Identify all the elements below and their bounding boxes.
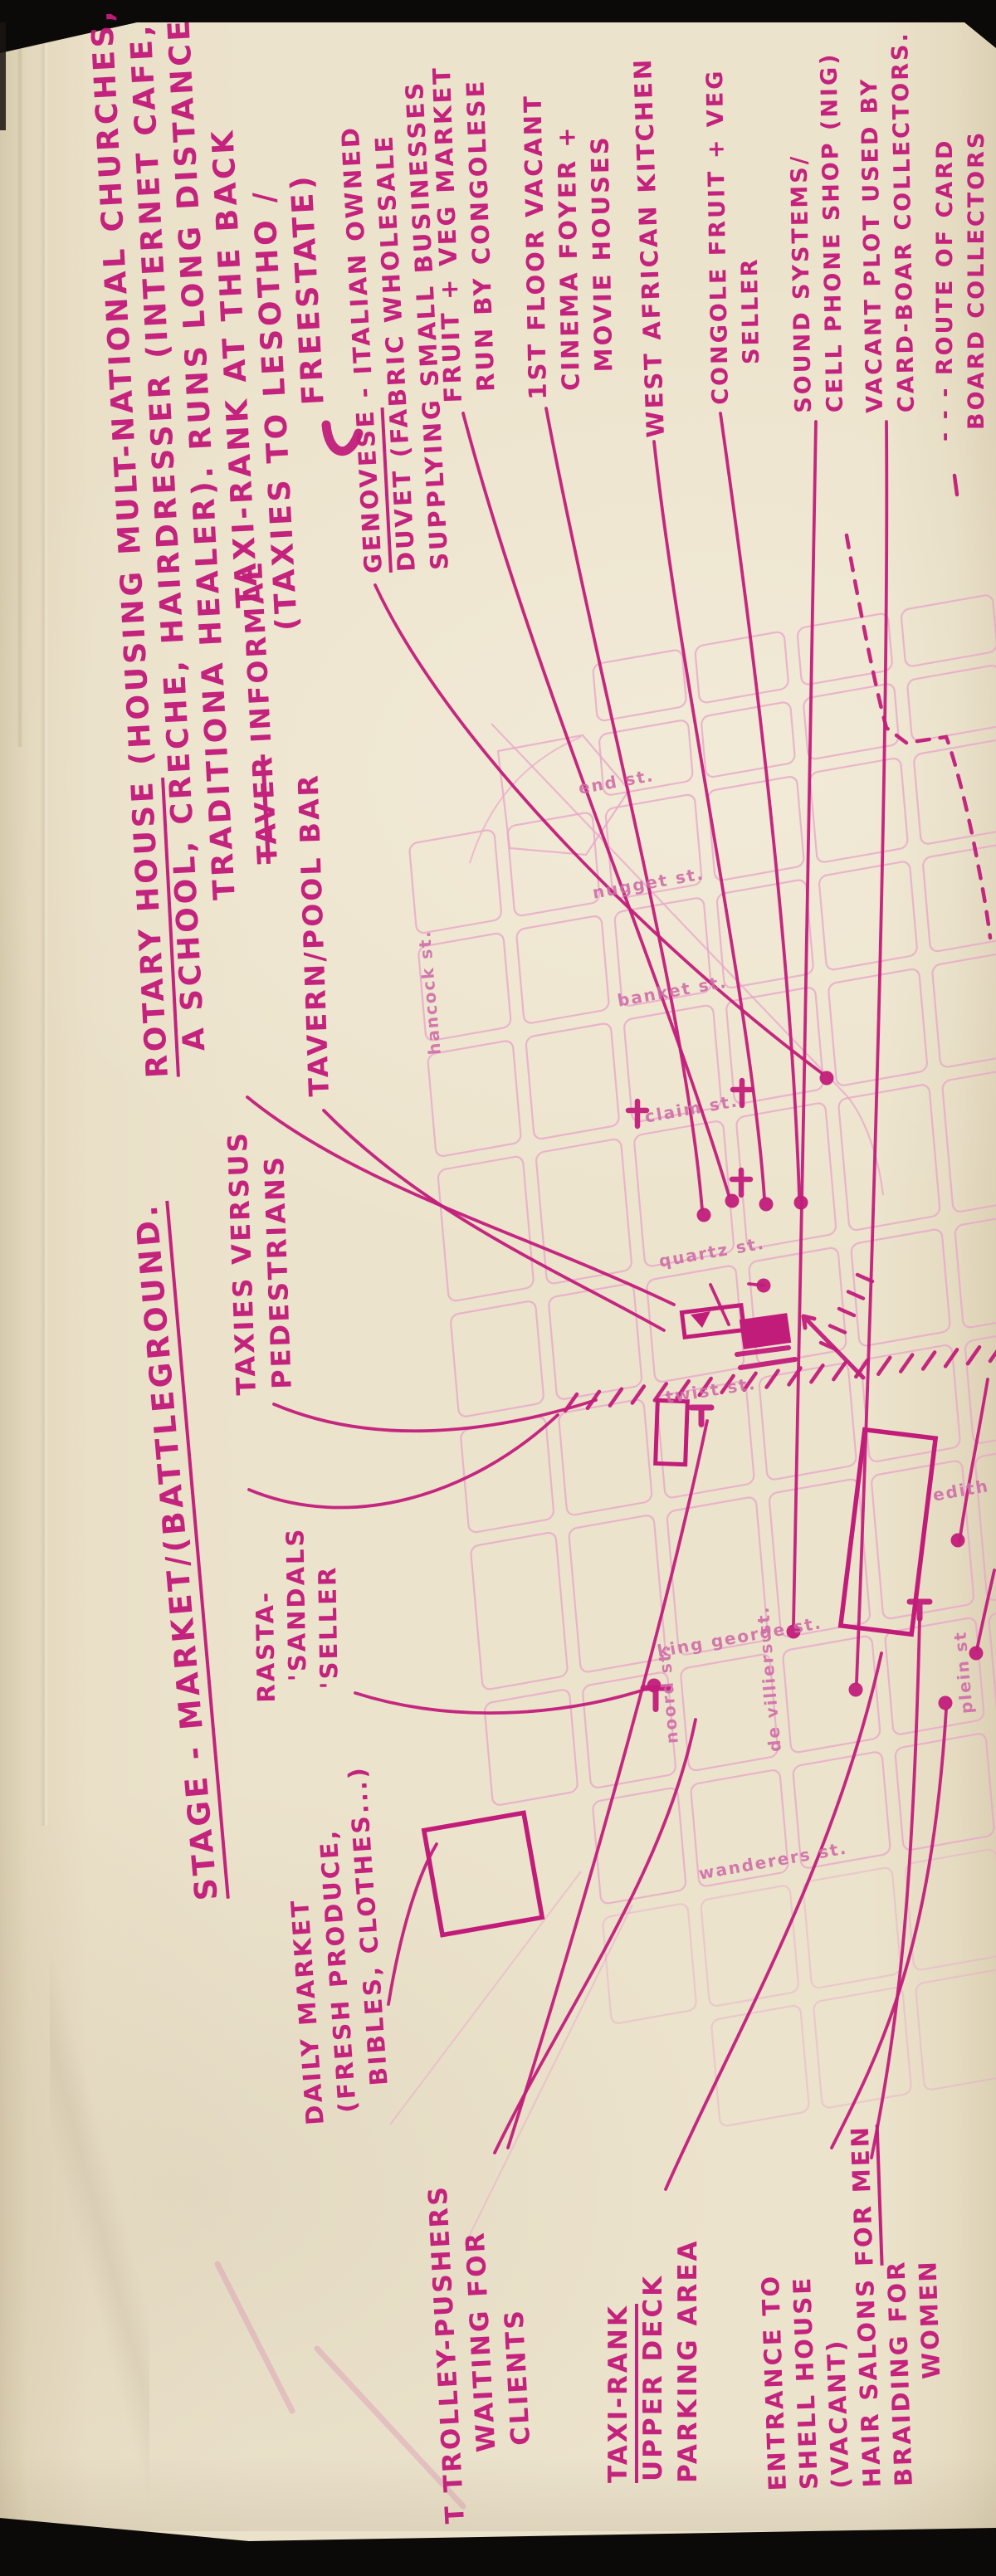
annotation-text: VACANT PLOT USED BY [857,76,888,413]
annotation-fruit-veg-market: FRUIT + VEG MARKETRUN BY CONGOLESE [425,64,503,403]
annotation-line: TAXI-RANK [601,2238,636,2483]
annotation-line: MOVIE HOUSES [583,92,621,398]
annotation-text: WOMEN [913,2259,945,2380]
annotation-line: CINEMA FOYER + [549,93,588,399]
annotation-text: CONGOLE FRUIT + VEG [702,68,734,405]
annotation-text: SELLER [737,256,764,364]
annotation-text: MOVIE HOUSES [585,134,618,372]
annotation-line: BOARD COLLECTORS [961,130,993,442]
annotation-text: RASTA- [251,1590,281,1703]
annotation-taxi-rank-upper-deck: TAXI-RANKUPPER DECKPARKING AREA [601,2238,705,2483]
annotation-entrance-shell-house: ENTRANCE TOSHELL HOUSE(VACANT)HAIR SALON… [749,2122,951,2491]
annotation-text: CLIENTS [500,2307,537,2446]
annotation-text: CARD-BOAR COLLECTORS. [887,31,920,412]
annotation-line: RASTA- [247,1527,282,1703]
annotation-text: 'SANDALS [281,1526,311,1681]
annotation-underlined-text: FOR MEN [846,2124,884,2266]
annotation-route-cardboard: - - - ROUTE OF CARDBOARD COLLECTORS [930,130,993,442]
annotation-line: 'SELLER [310,1526,345,1702]
annotation-text: SHELL HOUSE [788,2275,823,2490]
annotation-line: 1ST FLOOR VACANT [516,94,554,400]
scanned-notebook-page: end st.nugget st.banket st.claim st.quar… [0,0,996,2576]
annotation-struck-text: TAVER [246,754,284,865]
annotation-line: - - - ROUTE OF CARD [930,130,961,442]
annotation-text: - - - ROUTE OF CARD [932,139,958,442]
annotation-line: CARD-BOAR COLLECTORS. [885,31,923,412]
annotation-text: PARKING AREA [673,2238,703,2483]
annotation-text: 'SELLER [313,1564,344,1689]
annotation-line: SELLER [731,68,769,405]
annotation-underlined-text: TAXI-RANK [603,2304,638,2483]
annotation-line: UPPER DECK [636,2238,671,2483]
annotation-text: (VACANT) [822,2338,855,2489]
annotation-first-floor-cinema: 1ST FLOOR VACANTCINEMA FOYER +MOVIE HOUS… [516,92,621,400]
annotation-line: CONGOLE FRUIT + VEG [700,68,737,405]
annotation-text: CELL PHONE SHOP (NIG) [816,51,848,412]
annotation-text: UPPER DECK [638,2274,668,2481]
annotation-sound-systems: SOUND SYSTEMS/CELL PHONE SHOP (NIG) [782,51,852,413]
annotation-trolley-pushers: T TROLLEY-PUSHERSWAITING FORCLIENTS [421,2180,543,2525]
annotation-text: PEDESTRIANS [258,1154,298,1390]
annotation-rasta-sandals-seller: RASTA-'SANDALS'SELLER [247,1526,345,1703]
annotation-vacant-plot: VACANT PLOT USED BYCARD-BOAR COLLECTORS. [853,31,923,413]
annotation-text: 1ST FLOOR VACANT [519,94,552,400]
annotation-congole-seller: CONGOLE FRUIT + VEGSELLER [700,68,769,405]
annotation-text: BOARD COLLECTORS [964,130,989,430]
annotation-line: CELL PHONE SHOP (NIG) [813,51,852,412]
annotation-text: SOUND SYSTEMS/ [787,154,817,413]
annotation-line: PARKING AREA [671,2238,705,2483]
annotation-line: 'SANDALS [279,1526,314,1702]
annotation-taxies-vs-pedestrians: TAXIES VERSUSPEDESTRIANS [220,1129,300,1396]
annotation-text: CINEMA FOYER + [552,124,585,391]
